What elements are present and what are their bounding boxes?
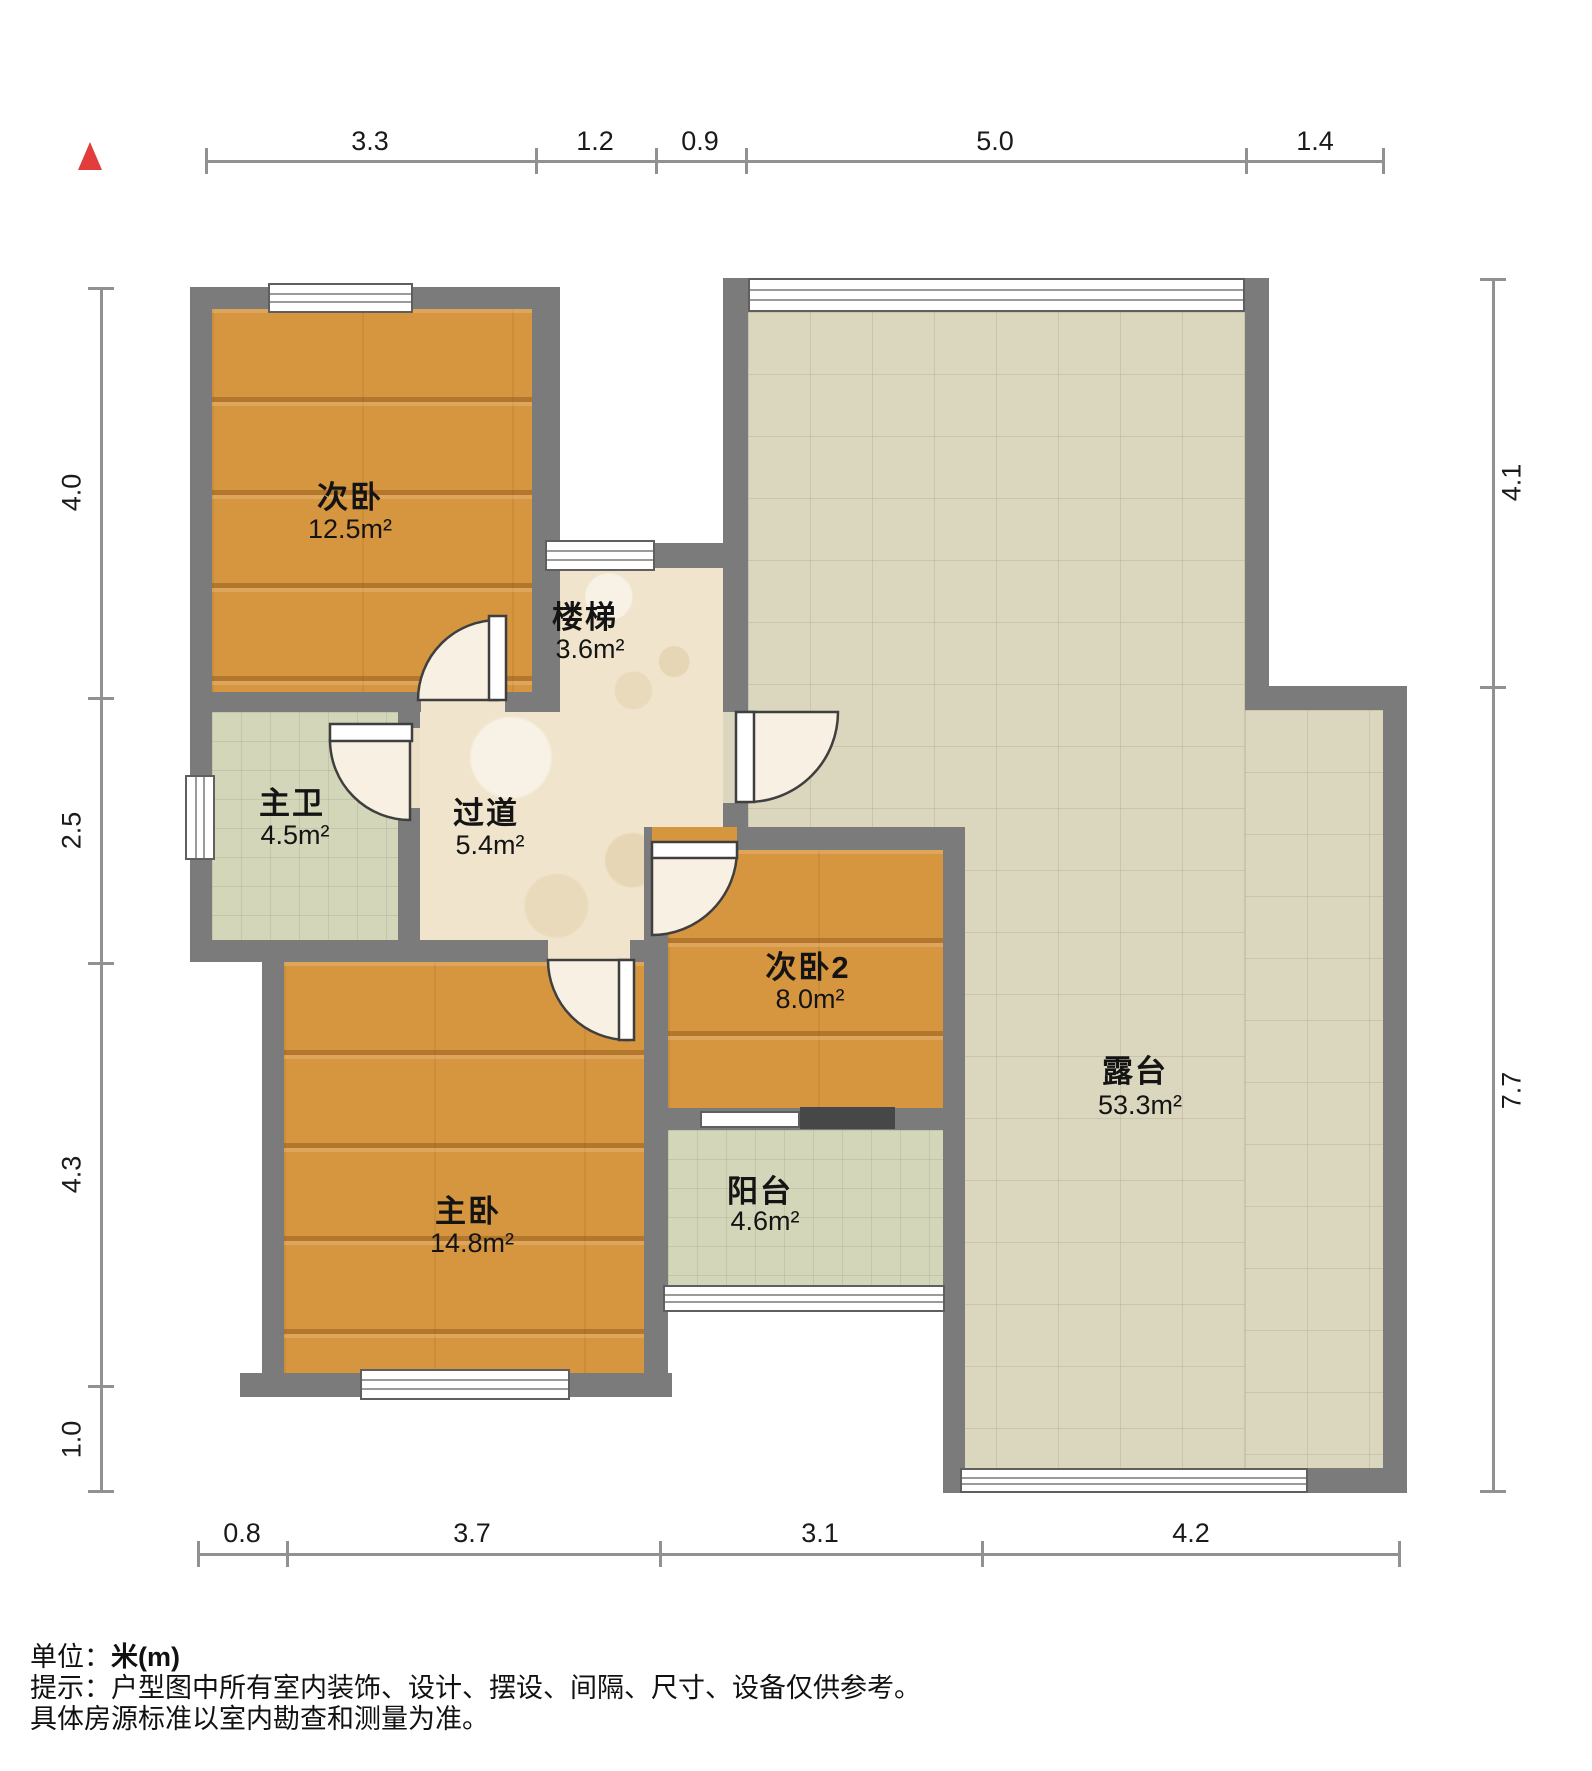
terrace-area: 53.3m² <box>1020 1090 1260 1121</box>
dim-line-bottom <box>197 1553 1401 1556</box>
bedroom3-label: 次卧2 <box>688 942 928 987</box>
dim-top-4: 5.0 <box>955 126 1035 157</box>
dim-left-3: 4.3 <box>57 1145 88 1205</box>
door-layer <box>0 0 1592 1771</box>
corridor-area: 5.4m² <box>370 830 610 861</box>
dim-right-1: 4.1 <box>1497 453 1528 513</box>
door-bedroom3 <box>652 842 737 935</box>
dim-left-1: 4.0 <box>57 463 88 523</box>
terrace-label: 露台 <box>1015 1046 1255 1091</box>
stairs-area: 3.6m² <box>470 634 710 665</box>
bedroom3-area: 8.0m² <box>690 984 930 1015</box>
dim-left-4: 1.0 <box>57 1410 88 1470</box>
dim-line-top <box>205 160 1385 163</box>
corridor-label: 过道 <box>366 788 606 833</box>
bedroom2-area: 12.5m² <box>230 514 470 545</box>
dim-line-right <box>1492 278 1495 1493</box>
bedroom2-label: 次卧 <box>230 472 470 517</box>
balcony-area: 4.6m² <box>645 1206 885 1237</box>
dim-bottom-2: 3.7 <box>432 1518 512 1549</box>
footer-tip-2: 具体房源标准以室内勘查和测量为准。 <box>30 1697 489 1736</box>
door-master-bedroom <box>548 960 634 1040</box>
dim-top-2: 1.2 <box>555 126 635 157</box>
floor-plan: 次卧 12.5m² 楼梯 3.6m² 主卫 4.5m² 过道 5.4m² 次卧2… <box>0 0 1592 1771</box>
dim-top-5: 1.4 <box>1275 126 1355 157</box>
dim-bottom-1: 0.8 <box>202 1518 282 1549</box>
dim-left-2: 2.5 <box>57 801 88 861</box>
stairs-label: 楼梯 <box>465 592 705 637</box>
balcony-label: 阳台 <box>640 1166 880 1211</box>
dim-bottom-4: 4.2 <box>1151 1518 1231 1549</box>
dim-top-1: 3.3 <box>330 126 410 157</box>
dim-right-2: 7.7 <box>1497 1061 1528 1121</box>
dim-line-left <box>100 287 103 1493</box>
dim-top-3: 0.9 <box>660 126 740 157</box>
master-bedroom-area: 14.8m² <box>352 1228 592 1259</box>
master-bedroom-label: 主卧 <box>348 1186 588 1231</box>
door-terrace <box>736 712 838 802</box>
dim-bottom-3: 3.1 <box>780 1518 860 1549</box>
